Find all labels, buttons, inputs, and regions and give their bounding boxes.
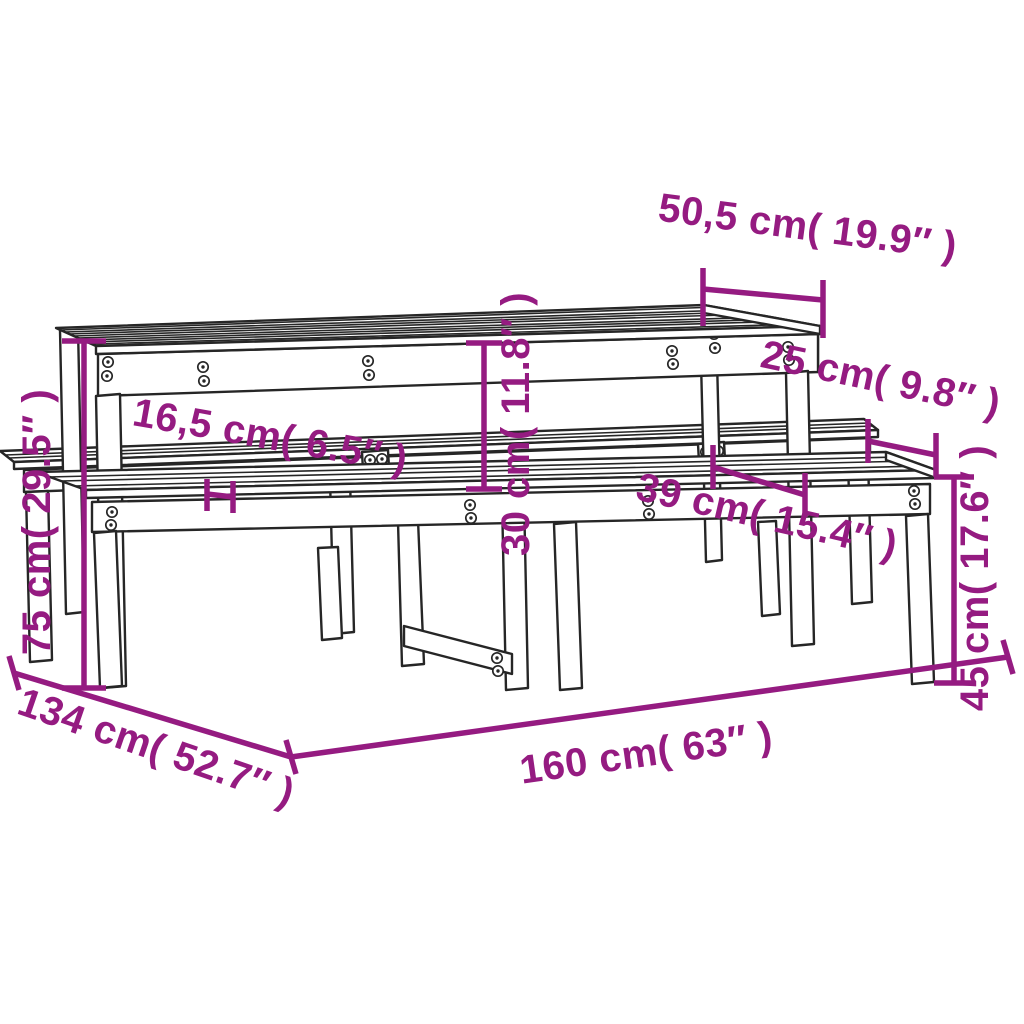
dim-total-length: 160 cm( 63″ )	[291, 640, 1013, 793]
front-bench-back-leg	[318, 547, 342, 640]
dim-label-seat-to-top-height: 30 cm( 11.8″ )	[494, 292, 538, 556]
front-bench-leg	[554, 522, 582, 690]
dim-table-top-depth: 50,5 cm( 19.9″ )	[656, 186, 960, 338]
dim-total-depth: 134 cm( 52.7″ )	[9, 656, 300, 816]
dim-label-table-height: 75 cm( 29.5″ )	[15, 389, 59, 655]
picnic-table-dimension-drawing: 50,5 cm( 19.9″ ) 25 cm( 9.8″ ) 16,5 cm( …	[0, 0, 1024, 1024]
front-bench-leg	[906, 514, 934, 684]
dim-bench-height: 45 cm( 17.6″ )	[934, 445, 997, 711]
dim-label-total-length: 160 cm( 63″ )	[517, 714, 775, 793]
diagram-canvas: 50,5 cm( 19.9″ ) 25 cm( 9.8″ ) 16,5 cm( …	[0, 0, 1024, 1024]
dim-label-table-top-depth: 50,5 cm( 19.9″ )	[656, 186, 960, 269]
dim-label-bench-height: 45 cm( 17.6″ )	[953, 445, 997, 711]
front-bench-leg	[94, 531, 122, 688]
